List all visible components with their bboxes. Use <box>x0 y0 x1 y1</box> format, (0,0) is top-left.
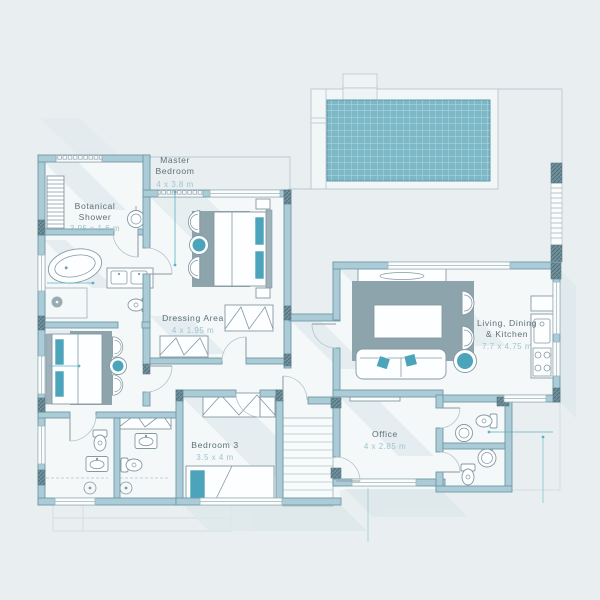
bedroom-3-label: Bedroom 3 <box>191 440 238 450</box>
dressing-area-label: Dressing Area <box>162 313 224 323</box>
dressing-area-dims: 4 x 1.95 m <box>172 326 214 335</box>
living-dining-kitchen-label: Living, Dining <box>477 318 537 328</box>
sink <box>86 457 108 472</box>
pool-step <box>343 74 377 88</box>
sideboard <box>358 269 446 283</box>
window <box>38 356 45 394</box>
botanical-shower-label: Botanical <box>75 201 116 211</box>
window <box>38 426 45 464</box>
wardrobe <box>225 305 273 331</box>
window <box>553 282 560 334</box>
sliding-glass-door <box>388 262 510 269</box>
toilet <box>121 458 142 472</box>
botanical-shower-label-2: Shower <box>79 212 112 222</box>
master-bedroom-label: Master <box>160 155 190 165</box>
sofa <box>356 349 446 379</box>
toilet <box>476 414 497 428</box>
dining-table <box>374 305 442 338</box>
floor-plan-canvas: Master Bedroom 4 x 3.8 m Botanical Showe… <box>0 0 600 600</box>
wardrobe <box>160 336 208 357</box>
master-bedroom-dims: 4 x 3.8 m <box>156 180 193 189</box>
swimming-pool <box>327 100 490 181</box>
pillow <box>55 371 64 397</box>
pillow <box>255 217 264 245</box>
pergola-trellis <box>551 163 562 262</box>
column-post <box>551 163 562 183</box>
toilet <box>93 430 107 451</box>
double-bed <box>46 334 102 404</box>
window <box>504 395 546 402</box>
column-post <box>551 245 562 262</box>
window <box>210 190 280 197</box>
window <box>38 255 45 291</box>
pillow <box>190 470 205 499</box>
sink <box>135 434 157 449</box>
shower-bench <box>47 176 64 234</box>
pillow <box>255 251 264 279</box>
double-bed <box>214 210 272 288</box>
living-dining-kitchen-dims: 7.7 x 4.75 m <box>482 342 532 351</box>
bedroom-3-dims: 3.5 x 4 m <box>196 453 233 462</box>
clerestory-window <box>158 190 203 197</box>
window <box>553 342 560 376</box>
window <box>352 479 416 486</box>
office-label: Office <box>372 429 398 439</box>
window <box>55 498 95 505</box>
round-side-table <box>110 358 127 375</box>
round-sink <box>456 425 473 442</box>
round-side-table <box>190 236 209 255</box>
living-dining-kitchen-label-2: & Kitchen <box>486 329 528 339</box>
pillow <box>404 354 417 367</box>
nightstand <box>256 288 270 298</box>
staircase <box>283 418 333 506</box>
nightstand <box>256 199 270 209</box>
master-bedroom-label-2: Bedroom <box>155 166 194 176</box>
window <box>200 498 282 505</box>
floor-plan-page: Master Bedroom 4 x 3.8 m Botanical Showe… <box>0 0 600 600</box>
refrigerator <box>531 296 553 311</box>
kitchen-counter <box>531 296 553 378</box>
round-side-table <box>454 350 477 373</box>
pillow <box>55 339 64 365</box>
botanical-shower-dims: 3.95 x 1.6 m <box>70 224 120 233</box>
toilet <box>461 464 475 485</box>
office-dims: 4 x 2.85 m <box>364 442 406 451</box>
single-bed <box>186 466 274 503</box>
clerestory-window <box>56 155 102 162</box>
master-bedroom-room <box>188 199 272 298</box>
office-room <box>350 397 400 401</box>
bedroom-2-room <box>46 331 127 405</box>
wall-shelf <box>350 397 400 401</box>
